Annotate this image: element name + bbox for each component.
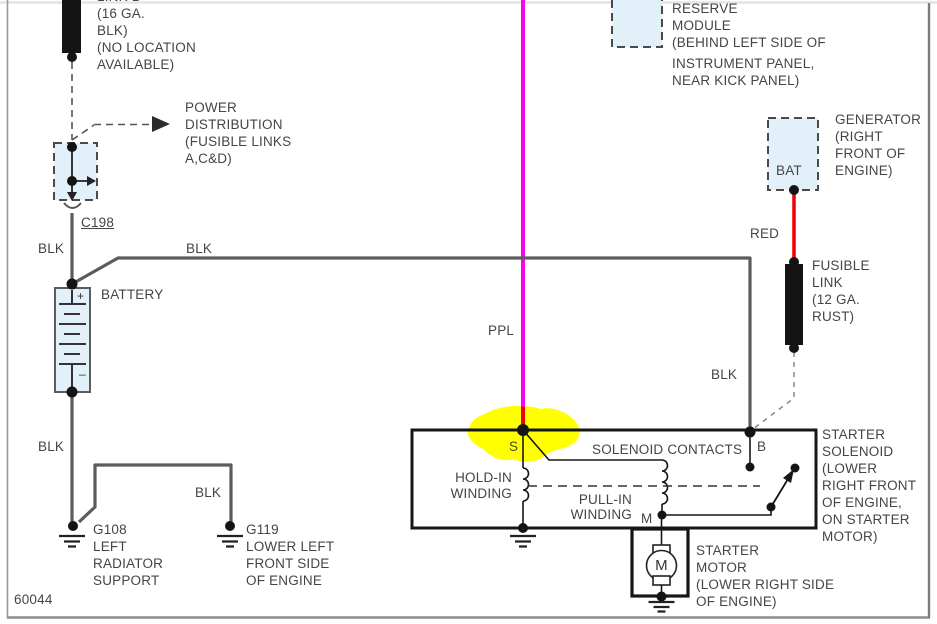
connector-c198-label: C198 [81, 214, 114, 231]
wire-label-ppl: PPL [488, 322, 514, 339]
reserve-module-label: RESERVEMODULE (BEHIND LEFT SIDE OF [672, 0, 826, 51]
wire-label-blk-right: BLK [711, 366, 737, 383]
power-distribution-label: POWERDISTRIBUTION (FUSIBLE LINKSA,C&D) [185, 99, 291, 167]
solenoid-contacts-label: SOLENOID CONTACTS [592, 441, 742, 458]
battery-plus-sign: + [77, 290, 84, 302]
hold-in-winding-label: HOLD-INWINDING [440, 470, 512, 502]
motor-m-symbol: M [645, 557, 678, 574]
diagram-number: 60044 [14, 591, 53, 608]
wire-label-blk-left: BLK [38, 240, 64, 257]
pull-in-winding-label: PULL-INWINDING [540, 493, 632, 522]
starter-motor-label: STARTERMOTOR (LOWER RIGHT SIDEOF ENGINE) [696, 542, 834, 610]
fusible-link-rust-symbol [785, 264, 803, 345]
battery-minus-sign: – [79, 368, 86, 380]
terminal-m-label: M [641, 510, 652, 527]
wire-label-blk-battery: BLK [38, 438, 64, 455]
generator-label: GENERATOR(RIGHT FRONT OFENGINE) [835, 111, 921, 179]
reserve-module-box [612, 0, 662, 47]
fusible-link-rust-label: FUSIBLELINK (12 GA.RUST) [812, 257, 870, 325]
generator-bat-terminal: BAT [776, 162, 802, 179]
generator-box [768, 118, 818, 190]
fusible-link-b-symbol [62, 0, 81, 53]
terminal-b-label: B [757, 438, 766, 455]
ground-symbol-motor [649, 602, 675, 612]
c198-junction-block [54, 143, 97, 208]
wiring-diagram: LINK B (16 GA.BLK) (NO LOCATIONAVAILABLE… [0, 0, 937, 624]
ground-g119-label: G119LOWER LEFT FRONT SIDEOF ENGINE [246, 521, 334, 589]
hold-in-winding-coil [523, 468, 529, 501]
wire-label-blk-top: BLK [186, 240, 212, 257]
battery-label: BATTERY [101, 286, 163, 303]
starter-solenoid-label: STARTERSOLENOID (LOWERRIGHT FRONT OF ENG… [822, 426, 916, 545]
reserve-module-label-2: INSTRUMENT PANEL,NEAR KICK PANEL) [672, 55, 814, 89]
ground-symbol-solenoid [510, 536, 536, 547]
terminal-s-label: S [509, 438, 518, 455]
ground-g108-label: G108LEFT RADIATORSUPPORT [93, 521, 163, 589]
pull-in-winding-coil [662, 460, 668, 504]
ground-symbol-g108 [59, 536, 85, 547]
ground-symbol-g119 [217, 536, 243, 547]
fusible-link-b-label: (16 GA.BLK) (NO LOCATIONAVAILABLE) [97, 5, 196, 73]
power-distribution-arrow-icon [152, 116, 170, 132]
dashed-links [72, 62, 794, 429]
wire-label-red: RED [750, 225, 779, 242]
junction-dots [67, 52, 800, 602]
wire-label-blk-g119: BLK [195, 484, 221, 501]
